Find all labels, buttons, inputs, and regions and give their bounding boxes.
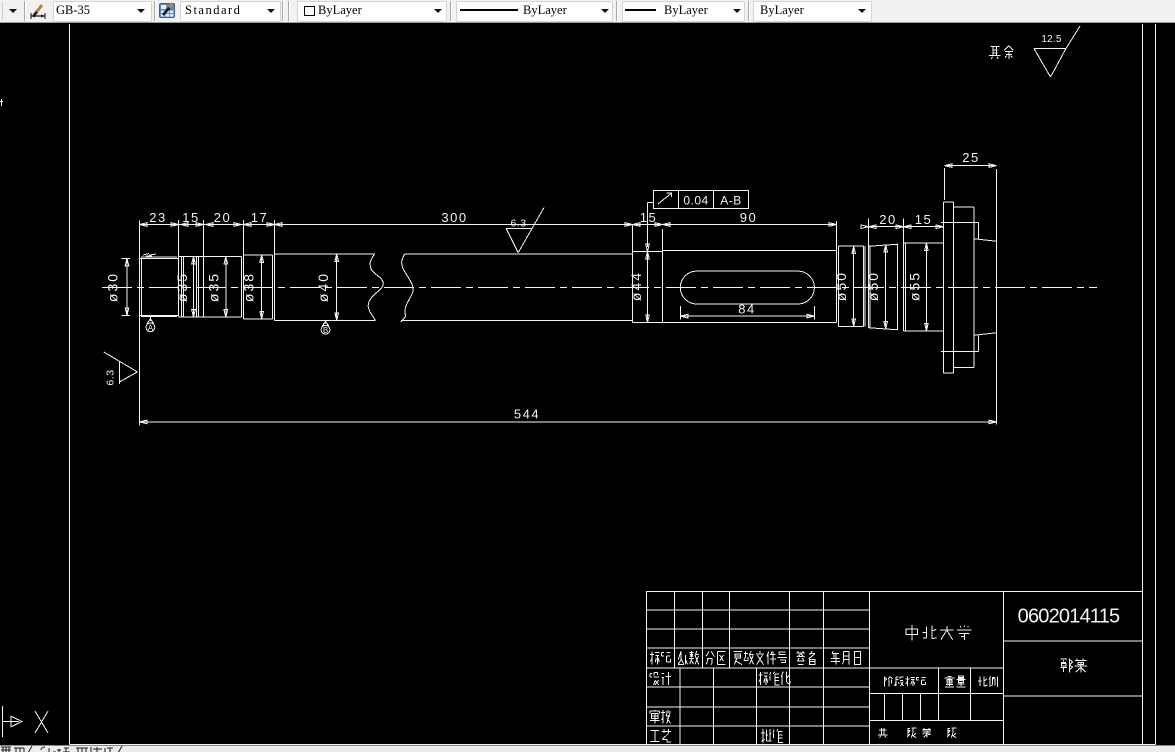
svg-text:ø38: ø38 xyxy=(241,272,257,302)
svg-text:0.04: 0.04 xyxy=(683,194,708,208)
svg-text:544: 544 xyxy=(514,407,540,422)
svg-text:0602014115: 0602014115 xyxy=(1018,606,1120,628)
svg-text:12.5: 12.5 xyxy=(1041,34,1062,45)
svg-text:300: 300 xyxy=(441,210,467,225)
svg-text:25: 25 xyxy=(962,150,979,165)
svg-text:20: 20 xyxy=(879,212,896,227)
svg-text:15: 15 xyxy=(915,212,932,227)
svg-text:ø35: ø35 xyxy=(174,272,190,302)
svg-text:ø50: ø50 xyxy=(865,271,881,301)
svg-text:15: 15 xyxy=(182,210,199,225)
svg-text:ø50: ø50 xyxy=(833,271,849,301)
svg-text:84: 84 xyxy=(738,302,755,317)
svg-text:ø30: ø30 xyxy=(105,272,121,302)
svg-text:ø35: ø35 xyxy=(206,272,222,302)
svg-text:23: 23 xyxy=(149,210,166,225)
svg-text:15: 15 xyxy=(640,210,657,225)
svg-text:17: 17 xyxy=(251,210,268,225)
svg-text:90: 90 xyxy=(740,210,757,225)
svg-text:6.3: 6.3 xyxy=(510,218,526,230)
svg-text:6.3: 6.3 xyxy=(105,369,117,385)
svg-text:B: B xyxy=(323,326,328,335)
svg-text:A-B: A-B xyxy=(720,194,742,208)
svg-text:ø55: ø55 xyxy=(907,271,923,301)
svg-text:ø44: ø44 xyxy=(628,271,644,301)
svg-text:20: 20 xyxy=(214,210,231,225)
svg-text:A: A xyxy=(148,324,154,333)
svg-text:ø40: ø40 xyxy=(315,272,331,302)
